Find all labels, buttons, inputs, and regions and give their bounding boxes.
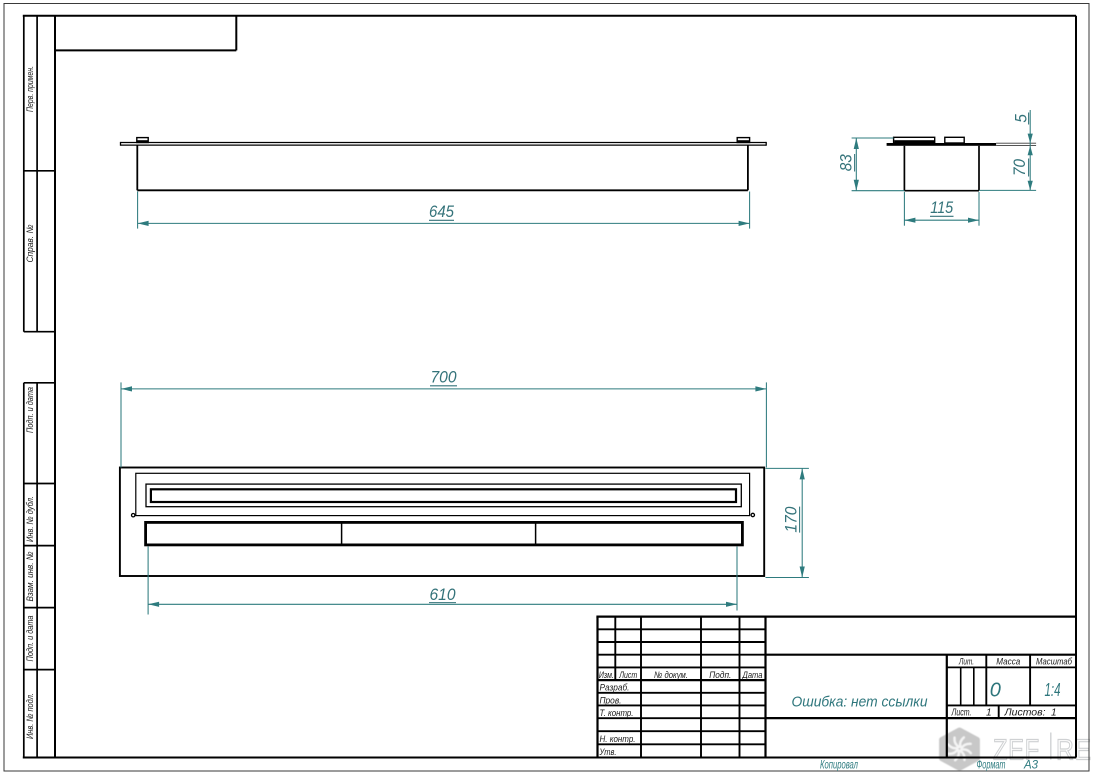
svg-text:0: 0	[990, 679, 1001, 701]
svg-text:115: 115	[930, 198, 953, 217]
svg-text:1: 1	[1051, 707, 1057, 718]
svg-text:Формат: Формат	[977, 760, 1006, 772]
svg-text:5: 5	[1012, 114, 1031, 123]
svg-text:Подп.: Подп.	[709, 670, 731, 681]
svg-text:Ошибка: нет ссылки: Ошибка: нет ссылки	[792, 694, 929, 711]
svg-text:RE: RE	[1056, 735, 1092, 767]
svg-text:Лит.: Лит.	[958, 657, 974, 668]
svg-text:Инв. № подл.: Инв. № подл.	[25, 693, 36, 739]
svg-text:Инв. № дубл.: Инв. № дубл.	[25, 496, 36, 542]
svg-text:Н. контр.: Н. контр.	[600, 734, 636, 745]
svg-text:Дата: Дата	[742, 670, 763, 681]
svg-text:Лист.: Лист.	[951, 707, 972, 718]
svg-text:Лист: Лист	[618, 670, 637, 681]
svg-text:Утв.: Утв.	[599, 747, 617, 758]
svg-text:Перв. примен.: Перв. примен.	[25, 66, 36, 112]
svg-text:83: 83	[837, 154, 856, 171]
svg-text:Разраб.: Разраб.	[600, 683, 630, 694]
svg-text:Масса: Масса	[996, 657, 1020, 668]
svg-text:А3: А3	[1023, 760, 1039, 772]
svg-text:645: 645	[429, 202, 454, 221]
svg-text:170: 170	[782, 506, 801, 532]
svg-text:700: 700	[431, 368, 457, 387]
svg-text:Копировал: Копировал	[820, 760, 858, 772]
svg-text:Справ. №: Справ. №	[25, 225, 36, 263]
svg-text:Взам. инв. №: Взам. инв. №	[25, 552, 36, 602]
svg-text:Листов:: Листов:	[1003, 707, 1045, 718]
svg-text:Пров.: Пров.	[600, 695, 622, 706]
svg-text:№ докум.: № докум.	[654, 670, 688, 681]
svg-text:Изм.: Изм.	[599, 670, 614, 681]
svg-text:Т. контр.: Т. контр.	[600, 708, 634, 719]
svg-text:Подп. и дата: Подп. и дата	[25, 387, 36, 433]
svg-text:1: 1	[986, 707, 992, 718]
svg-text:610: 610	[430, 585, 456, 604]
svg-text:70: 70	[1010, 159, 1029, 176]
svg-text:Подп. и дата: Подп. и дата	[25, 616, 36, 662]
svg-text:1:4: 1:4	[1045, 679, 1061, 700]
svg-text:Масштаб: Масштаб	[1036, 657, 1073, 668]
